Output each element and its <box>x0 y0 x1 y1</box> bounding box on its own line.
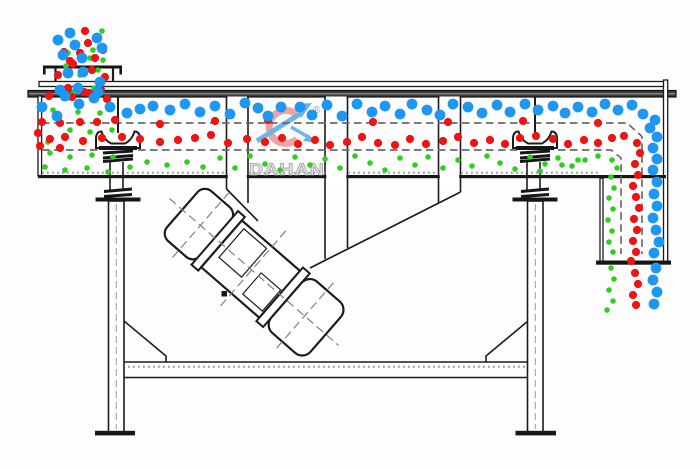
bottom-gap-3 <box>440 175 459 179</box>
red-particle <box>629 291 637 299</box>
red-particle <box>374 139 382 147</box>
blue-particle <box>380 101 391 112</box>
blue-particle <box>253 103 264 114</box>
green-particle <box>337 165 343 171</box>
green-particle <box>512 166 518 172</box>
blue-particle <box>649 299 660 310</box>
red-particle <box>81 27 89 35</box>
blue-particle <box>37 102 48 113</box>
blue-particle <box>652 287 663 298</box>
green-particle <box>537 168 543 174</box>
spring-left-saddle-base <box>99 146 137 150</box>
green-particle <box>322 156 328 162</box>
blue-particle <box>89 93 100 104</box>
blue-particle <box>295 102 306 113</box>
green-particle <box>559 162 565 168</box>
green-particle <box>367 160 373 166</box>
red-particle <box>111 116 119 124</box>
red-particle <box>634 171 642 179</box>
red-particle <box>369 118 377 126</box>
blue-particle <box>407 99 418 110</box>
red-particle <box>156 138 164 146</box>
red-particle <box>633 139 641 147</box>
blue-particle <box>652 132 663 143</box>
green-particle <box>610 206 616 212</box>
green-particle <box>542 161 548 167</box>
red-particle <box>391 141 399 149</box>
spring-right-coil-top <box>520 151 550 162</box>
green-particle <box>89 152 95 158</box>
green-particle <box>425 154 431 160</box>
red-particle <box>439 137 447 145</box>
green-particle <box>292 154 298 160</box>
red-particle <box>629 237 637 245</box>
red-particle <box>580 136 588 144</box>
spring-left-coil-top <box>103 151 133 162</box>
red-particle <box>69 60 77 68</box>
spring-right-saddle-base <box>516 146 554 150</box>
blue-particle <box>65 28 76 39</box>
green-particle <box>144 159 150 165</box>
blue-particle <box>78 67 89 78</box>
watermark-brand-text: DAHAN <box>249 160 325 179</box>
red-particle <box>620 132 628 140</box>
blue-particle <box>645 123 656 134</box>
green-particle <box>84 165 90 171</box>
blue-particle <box>477 108 488 119</box>
green-particle <box>484 153 490 159</box>
green-particle <box>606 287 612 293</box>
red-particle <box>54 71 62 79</box>
blue-particle <box>352 99 363 110</box>
top-cover-plate <box>39 82 667 87</box>
green-particle <box>90 47 96 53</box>
green-particle <box>109 127 115 133</box>
green-particle <box>611 185 617 191</box>
red-particle <box>564 140 572 148</box>
blue-particle <box>560 108 571 119</box>
blue-particle <box>53 35 64 46</box>
blue-particle <box>395 109 406 120</box>
green-particle <box>307 162 313 168</box>
blue-particle <box>92 33 103 44</box>
red-particle <box>45 92 53 100</box>
spring-right-base-plate <box>513 198 558 202</box>
green-particle <box>87 129 93 135</box>
red-particle <box>635 204 643 212</box>
green-particle <box>582 157 588 163</box>
blue-particle <box>649 248 660 259</box>
red-particle <box>79 137 87 145</box>
blue-particle <box>135 104 146 115</box>
green-particle <box>42 164 48 170</box>
green-particle <box>611 276 617 282</box>
green-particle <box>232 165 238 171</box>
blue-particle <box>70 40 81 51</box>
blue-particle <box>627 100 638 111</box>
red-particle <box>358 133 366 141</box>
green-particle <box>455 157 461 163</box>
red-particle <box>636 149 644 157</box>
green-particle <box>164 162 170 168</box>
red-particle <box>211 117 219 125</box>
red-particle <box>632 193 640 201</box>
blue-particle <box>654 237 665 248</box>
green-particle <box>555 155 561 161</box>
green-particle <box>100 57 106 63</box>
blue-particle <box>337 111 348 122</box>
green-particle <box>606 195 612 201</box>
bottom-gap-1 <box>228 175 247 179</box>
green-particle <box>606 239 612 245</box>
green-particle <box>67 154 73 160</box>
blue-particle <box>651 225 662 236</box>
red-particle <box>88 66 96 74</box>
red-particle <box>486 136 494 144</box>
red-particle <box>633 226 641 234</box>
blue-particle <box>652 154 663 165</box>
blue-particle <box>648 213 659 224</box>
red-particle <box>630 215 638 223</box>
green-particle <box>527 154 533 160</box>
blue-particle <box>165 105 176 116</box>
blue-particle <box>60 91 71 102</box>
red-particle <box>516 134 524 142</box>
blue-particle <box>648 275 659 286</box>
box-bottom-bar <box>38 175 666 178</box>
blue-particle <box>122 108 133 119</box>
spring-left-base-plate <box>96 198 141 202</box>
green-particle <box>75 109 81 115</box>
red-particle <box>136 135 144 143</box>
blue-particle <box>52 111 63 122</box>
blue-particle <box>648 165 659 176</box>
blue-particle <box>587 107 598 118</box>
red-particle <box>93 118 101 126</box>
green-particle <box>497 160 503 166</box>
blue-particle <box>652 177 663 188</box>
green-particle <box>217 155 223 161</box>
green-particle <box>440 165 446 171</box>
red-particle <box>38 118 46 126</box>
red-particle <box>61 133 69 141</box>
red-particle <box>243 135 251 143</box>
blue-particle <box>492 100 503 111</box>
red-particle <box>118 133 126 141</box>
red-particle <box>444 118 452 126</box>
blue-particle <box>77 53 88 64</box>
vibrating-screen-schematic: ® DAHAN <box>0 0 700 470</box>
red-particle <box>549 135 557 143</box>
red-particle <box>532 132 540 140</box>
red-particle <box>56 144 64 152</box>
red-particle <box>608 134 616 142</box>
red-particle <box>406 135 414 143</box>
green-particle <box>412 162 418 168</box>
box-wall-right <box>664 80 668 263</box>
green-particle <box>67 127 73 133</box>
red-particle <box>594 139 602 147</box>
blue-particle <box>58 50 69 61</box>
red-particle <box>156 120 164 128</box>
blue-particle <box>225 109 236 120</box>
blue-particle <box>548 101 559 112</box>
blue-particle <box>195 107 206 118</box>
green-particle <box>595 153 601 159</box>
green-particle <box>609 228 615 234</box>
blue-particle <box>105 102 116 113</box>
red-particle <box>631 269 639 277</box>
red-particle <box>278 134 286 142</box>
red-particle <box>46 135 54 143</box>
blue-particle <box>600 99 611 110</box>
red-particle <box>91 54 99 62</box>
red-particle <box>627 257 635 265</box>
green-particle <box>608 174 614 180</box>
blue-particle <box>505 107 516 118</box>
green-particle <box>569 163 575 169</box>
background <box>0 0 700 470</box>
foot-plate-right <box>516 431 557 436</box>
red-particle <box>207 131 215 139</box>
red-particle <box>343 138 351 146</box>
red-particle <box>631 160 639 168</box>
green-particle <box>469 163 475 169</box>
green-particle <box>97 110 103 116</box>
green-particle <box>247 153 253 159</box>
green-particle <box>609 157 615 163</box>
red-particle <box>84 39 92 47</box>
blue-particle <box>648 143 659 154</box>
red-particle <box>261 138 269 146</box>
green-particle <box>614 165 620 171</box>
red-particle <box>594 119 602 127</box>
green-particle <box>352 153 358 159</box>
inlet-flange-tick-right <box>119 66 122 75</box>
green-particle <box>262 161 268 167</box>
blue-particle <box>367 107 378 118</box>
green-particle <box>605 217 611 223</box>
blue-particle <box>613 105 624 116</box>
green-particle <box>110 154 116 160</box>
red-particle <box>326 141 334 149</box>
blue-particle <box>276 102 287 113</box>
red-particle <box>174 136 182 144</box>
green-particle <box>105 169 111 175</box>
red-particle <box>632 301 640 309</box>
green-particle <box>200 164 206 170</box>
blue-particle <box>322 100 333 111</box>
red-particle <box>501 140 509 148</box>
green-particle <box>127 164 133 170</box>
green-particle <box>610 298 616 304</box>
blue-particle <box>73 83 84 94</box>
red-particle <box>76 118 84 126</box>
blue-particle <box>210 101 221 112</box>
red-particle <box>36 142 44 150</box>
blue-particle <box>422 105 433 116</box>
foot-plate-left <box>95 431 135 436</box>
blue-particle <box>74 99 85 110</box>
blue-particle <box>263 111 274 122</box>
blue-particle <box>180 99 191 110</box>
green-particle <box>575 157 581 163</box>
blue-particle <box>649 189 660 200</box>
green-particle <box>62 167 68 173</box>
blue-particle <box>463 102 474 113</box>
blue-particle <box>651 263 662 274</box>
green-particle <box>277 167 283 173</box>
red-particle <box>454 133 462 141</box>
blue-particle <box>63 68 74 79</box>
inlet-flange-tick-left <box>43 66 46 75</box>
blue-particle <box>97 43 108 54</box>
blue-particle <box>638 109 649 120</box>
green-particle <box>608 265 614 271</box>
blue-particle <box>652 201 663 212</box>
red-particle <box>470 139 478 147</box>
green-particle <box>184 159 190 165</box>
red-particle <box>224 139 232 147</box>
green-particle <box>397 155 403 161</box>
blue-particle <box>307 110 318 121</box>
red-particle <box>629 182 637 190</box>
blue-particle <box>573 102 584 113</box>
bottom-gap-2 <box>326 175 346 179</box>
blue-particle <box>448 99 459 110</box>
green-particle <box>604 307 610 313</box>
red-particle <box>634 280 642 288</box>
red-particle <box>34 129 42 137</box>
blue-particle <box>533 105 544 116</box>
red-particle <box>311 136 319 144</box>
blue-particle <box>435 110 446 121</box>
red-particle <box>98 134 106 142</box>
green-particle <box>610 249 616 255</box>
blue-particle <box>95 77 106 88</box>
red-particle <box>632 248 640 256</box>
red-particle <box>294 140 302 148</box>
red-particle <box>422 140 430 148</box>
blue-particle <box>520 99 531 110</box>
green-particle <box>47 150 53 156</box>
chute-left-wall <box>600 178 603 262</box>
red-particle <box>191 134 199 142</box>
motor-bolt <box>222 291 228 297</box>
green-particle <box>99 28 105 34</box>
red-particle <box>519 117 527 125</box>
blue-particle <box>240 98 251 109</box>
schematic-svg: ® DAHAN <box>0 0 700 470</box>
blue-particle <box>148 101 159 112</box>
green-particle <box>382 167 388 173</box>
